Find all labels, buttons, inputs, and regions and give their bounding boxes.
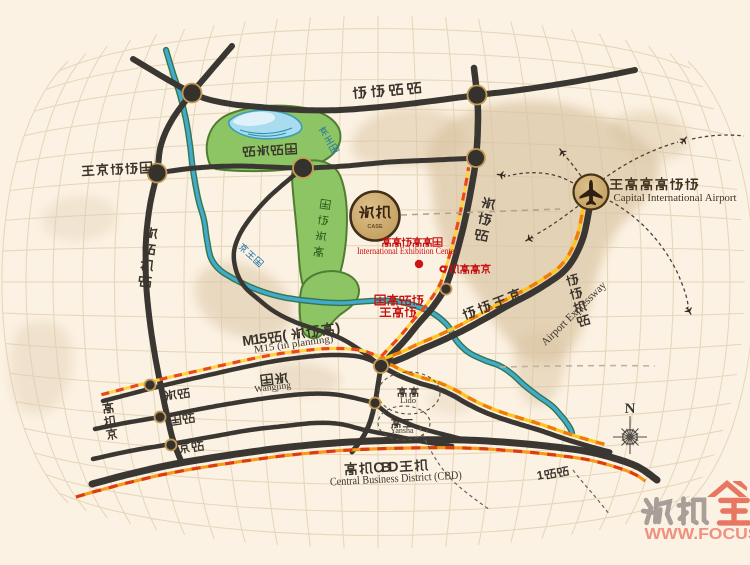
svg-text:International Exhibition Cente: International Exhibition Center — [357, 247, 458, 257]
svg-text:Lido: Lido — [400, 395, 416, 405]
svg-text:N: N — [625, 401, 636, 417]
svg-text:Capital International Airport: Capital International Airport — [614, 192, 737, 204]
svg-text:Yansha: Yansha — [390, 426, 414, 435]
svg-text:WWW.FOCUS: WWW.FOCUS — [645, 526, 750, 543]
svg-text:CASE: CASE — [367, 224, 383, 230]
